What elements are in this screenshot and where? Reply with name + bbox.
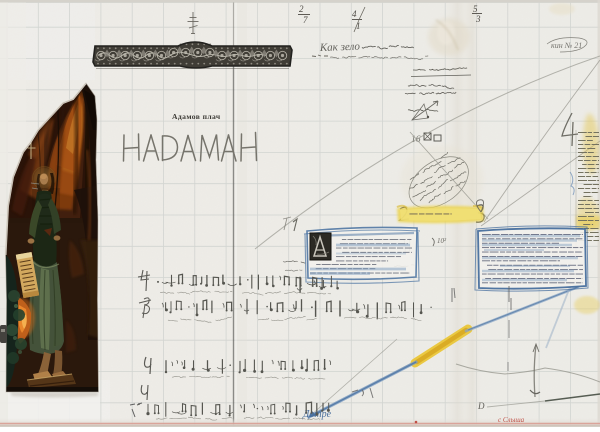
svg-text:2: 2 <box>299 4 304 14</box>
svg-text:кин № 21: кин № 21 <box>551 41 582 50</box>
svg-text:4: 4 <box>352 9 357 19</box>
svg-text:3: 3 <box>475 14 481 24</box>
svg-text:Как зело: Как зело <box>319 41 361 54</box>
svg-text:5: 5 <box>473 4 478 14</box>
svg-text:с Слыша: с Слыша <box>498 416 525 424</box>
svg-text:10²: 10² <box>437 237 447 245</box>
svg-text:7: 7 <box>303 15 308 25</box>
svg-text:D: D <box>477 401 485 411</box>
svg-text:Адамов плач: Адамов плач <box>172 112 221 121</box>
